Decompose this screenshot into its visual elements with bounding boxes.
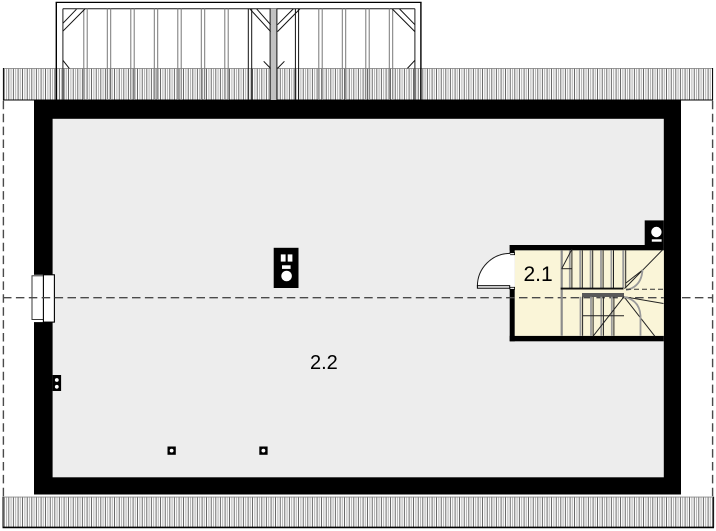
svg-text:2.2: 2.2: [310, 352, 338, 374]
svg-text:2.1: 2.1: [524, 263, 553, 286]
